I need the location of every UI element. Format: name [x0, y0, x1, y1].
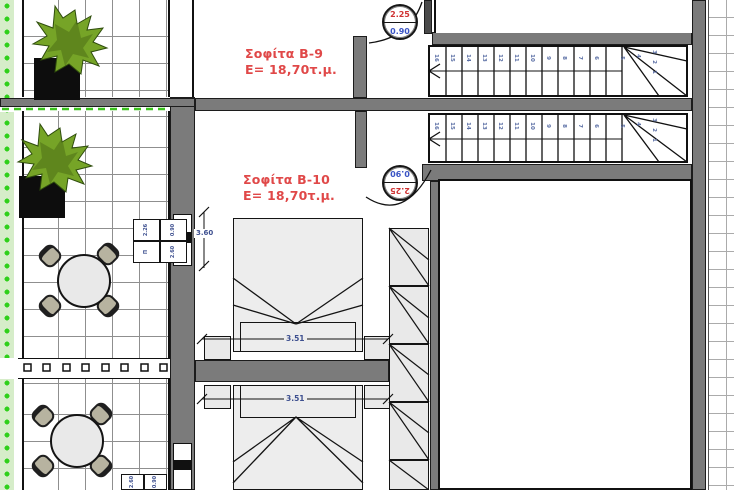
stair-step-number: 10: [526, 53, 538, 63]
stair-step-number: 5: [616, 121, 628, 131]
stair-step-number: 13: [478, 53, 490, 63]
unit-b9-name: Σοφίτα B-9: [245, 46, 337, 62]
nightstand: [364, 385, 390, 409]
nightstand: [204, 336, 231, 360]
floor-plan-canvas: 16 15 14 13 12 11 10 9 8 7 6 5 4 3 2 1 1…: [0, 0, 734, 490]
stair-step-number: 7: [574, 121, 586, 131]
unit-label-b10: Σοφίτα B-10 E= 18,70τ.μ.: [243, 172, 335, 204]
door-width-value: 0.90: [384, 166, 416, 182]
wall-b10-door-jamb: [355, 111, 367, 168]
wardrobe-cell: [389, 460, 429, 490]
door-dimension-marker-upper: 2.25 0.90: [382, 4, 418, 40]
stair-step-number: 12: [494, 53, 506, 63]
right-balcony-tiles: [708, 0, 734, 490]
wardrobe-cell: [389, 286, 429, 344]
stair-step-number: 11: [510, 121, 522, 131]
info-cell: 2.60: [121, 474, 144, 490]
stair-step-number: 15: [446, 121, 458, 131]
nightstand: [204, 385, 231, 409]
dimension-wall-left: 3.60: [194, 229, 215, 238]
room-top-right: [434, 0, 692, 33]
balcony-upper-tiles: [22, 0, 170, 97]
stair-step-number: 6: [590, 53, 602, 63]
unit-b10-name: Σοφίτα B-10: [243, 172, 335, 188]
wall-middle-horizontal: [195, 360, 389, 382]
stair-step-number: 16: [430, 121, 442, 131]
nightstand: [364, 336, 390, 360]
info-cell: 0.90: [144, 474, 167, 490]
window-marker-lower-sash: [173, 460, 192, 470]
door-dimension-marker-lower: 2.25 0.90: [382, 165, 418, 201]
info-cell: 0.90: [160, 219, 187, 241]
stair-step-number: 3: [648, 47, 660, 57]
stair-step-number: 3: [648, 115, 660, 125]
info-box-lower: 2.60 0.90: [121, 474, 167, 490]
stair-step-number: 11: [510, 53, 522, 63]
stair-step-number: 8: [558, 53, 570, 63]
unit-label-b9: Σοφίτα B-9 E= 18,70τ.μ.: [245, 46, 337, 78]
stair-step-number: 9: [542, 53, 554, 63]
wardrobe-cell: [389, 402, 429, 460]
stair-step-number: 2: [648, 125, 660, 135]
garden-strip-gap: [0, 107, 18, 112]
stair-step-number: 5: [616, 53, 628, 63]
wardrobe-cell: [389, 228, 429, 286]
room-right: [438, 179, 692, 490]
stair-step-number: 14: [462, 121, 474, 131]
dining-table-upper: [57, 254, 111, 308]
stair-step-number: 4: [632, 119, 644, 129]
unit-b10-area: E= 18,70τ.μ.: [243, 188, 335, 204]
wall-balcony-divider: [0, 98, 195, 107]
info-cell: 2.60: [160, 241, 187, 263]
stair-step-number: 9: [542, 121, 554, 131]
stair-step-number: 10: [526, 121, 538, 131]
wardrobe-cell: [389, 344, 429, 402]
stair-step-number: 16: [430, 53, 442, 63]
info-box-upper: 2.26 0.90 Π 2.60: [133, 219, 187, 263]
dining-table-lower: [50, 414, 104, 468]
door-height-value: 2.25: [384, 6, 416, 23]
railing-band: [18, 358, 195, 379]
wall-horizontal-main: [195, 98, 692, 111]
dimension-bed-lower: 3.51: [284, 394, 307, 403]
garden-strip: [0, 0, 14, 490]
wall-right-vertical: [692, 0, 706, 490]
dimension-bed-upper: 3.51: [284, 334, 307, 343]
stair-step-number: 6: [590, 121, 602, 131]
stair-step-number: 8: [558, 121, 570, 131]
info-cell: 2.26: [133, 219, 160, 241]
stair-step-number: 7: [574, 53, 586, 63]
door-height-value: 2.25: [384, 182, 416, 199]
stair-step-number: 13: [478, 121, 490, 131]
stair-step-number: 1: [648, 135, 660, 145]
stair-step-number: 4: [632, 51, 644, 61]
wall-b9-right: [353, 36, 367, 98]
stair-step-number: 12: [494, 121, 506, 131]
stair-step-number: 1: [648, 67, 660, 77]
stair-step-number: 15: [446, 53, 458, 63]
railing-band-end: [0, 358, 18, 379]
wall-left-vertical: [170, 97, 195, 490]
unit-b9-area: E= 18,70τ.μ.: [245, 62, 337, 78]
stair-step-number: 14: [462, 53, 474, 63]
info-cell: Π: [133, 241, 160, 263]
door-width-value: 0.90: [384, 23, 416, 39]
wall-top-jamb: [424, 0, 432, 34]
stair-step-number: 2: [648, 57, 660, 67]
wall-top-right-horizontal: [432, 32, 692, 45]
